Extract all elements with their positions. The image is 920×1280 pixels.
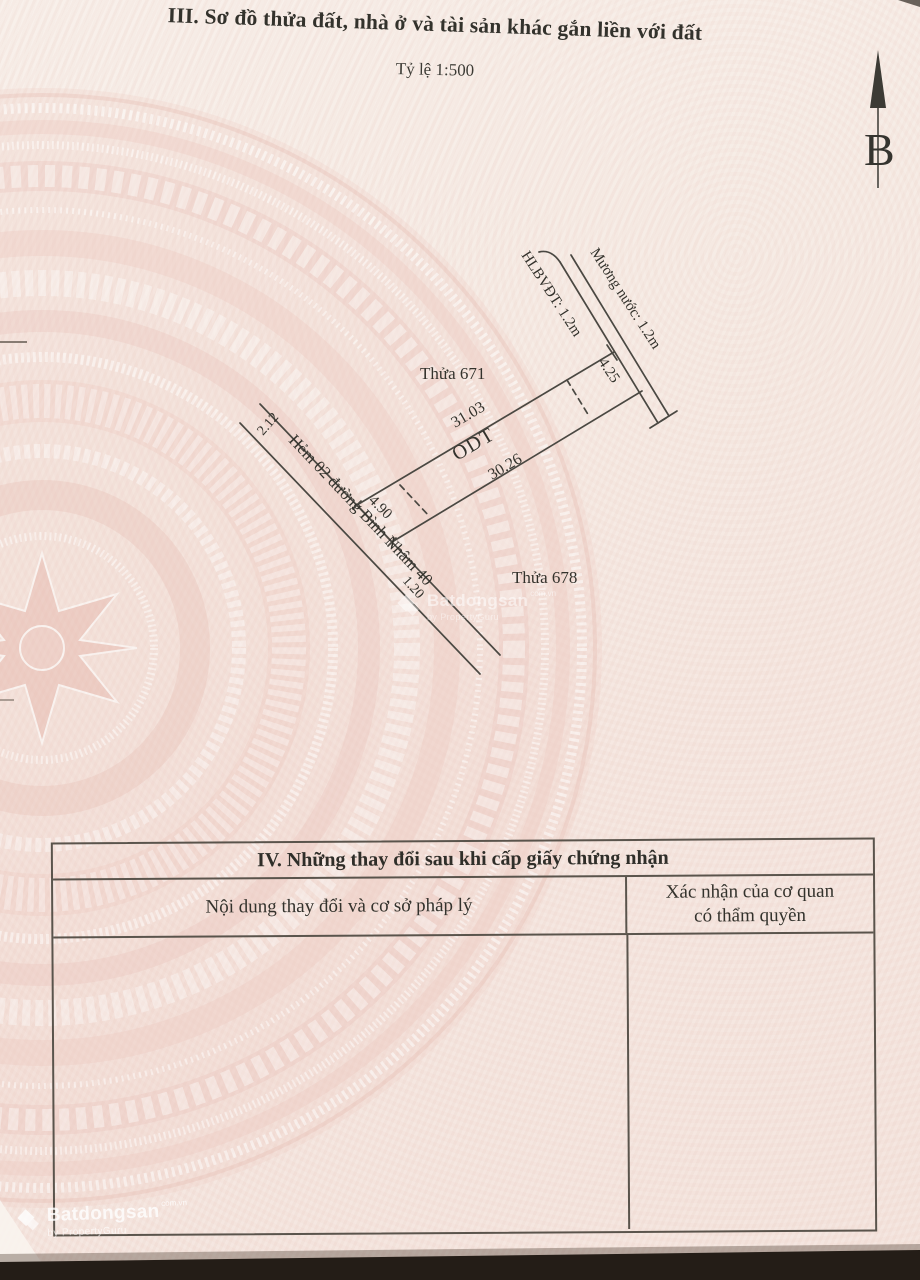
dim-street-upper: 2.12 [255,410,282,438]
parcel-678-label: Thửa 678 [512,568,577,587]
parcel-671-label: Thửa 671 [420,364,485,383]
brand-name: Batdongsan [427,592,528,609]
col-content-header: Nội dung thay đổi và cơ sở pháp lý [53,877,625,936]
section-iv-table: IV. Những thay đổi sau khi cấp giấy chứn… [51,837,877,1236]
table-column-divider [626,935,630,1229]
street-edge-lower [240,423,480,674]
brand-diamond-icon [398,595,420,617]
street-name-label: Hẻm 02 đường Bình Nhâm 40 [285,431,437,590]
page-crease-mark [0,699,14,701]
dim-bottom-length: 30.26 [485,451,525,484]
page-crease-mark [0,341,27,343]
brand-suffix: com.vn [530,590,556,598]
col-confirmation-line2: có thẩm quyền [694,904,806,928]
center-watermark: Batdongsan com.vn by PropertyGuru [398,592,556,622]
brand-name: Batdongsan [46,1202,159,1225]
col-confirmation-header: Xác nhận của cơ quan có thẩm quyền [625,875,874,933]
section-iv-title: IV. Những thay đổi sau khi cấp giấy chứn… [53,839,873,880]
setback-dashed-front [400,485,430,517]
brand-suffix: com.vn [161,1199,187,1208]
table-header-row: Nội dung thay đổi và cơ sở pháp lý Xác n… [53,875,873,938]
canal-hook [539,251,560,262]
col-confirmation-line1: Xác nhận của cơ quan [666,880,834,905]
brand-diamond-icon [18,1209,41,1232]
bottom-left-watermark: Batdongsan com.vn by PropertyGuru [17,1201,188,1240]
corridor-dashed-rear [567,380,589,416]
certificate-page: III. Sơ đồ thửa đất, nhà ở và tài sản kh… [0,0,920,1280]
tick-canal-far [661,411,677,421]
brand-byline: by PropertyGuru [427,613,556,622]
dim-rear-width: 4.25 [595,355,623,386]
